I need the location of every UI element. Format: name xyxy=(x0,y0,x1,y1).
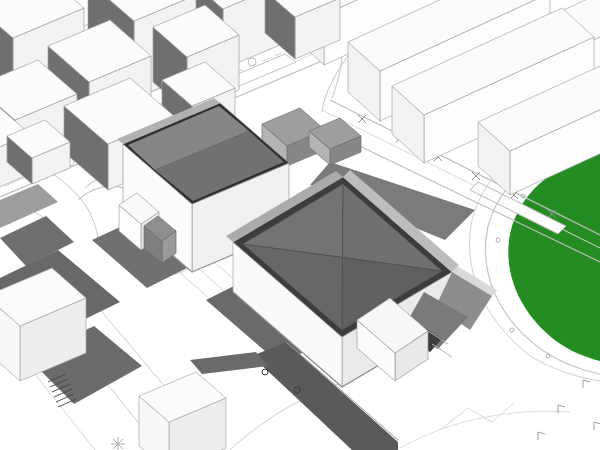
bottom-faint-path xyxy=(400,411,570,448)
park-dot-5 xyxy=(510,328,514,332)
crossing-curve xyxy=(68,186,98,238)
bench-glyphs xyxy=(538,380,600,440)
scene-svg xyxy=(0,0,600,450)
park-dot-6 xyxy=(546,354,550,358)
manhole-1 xyxy=(248,58,256,66)
model-viewport xyxy=(0,0,600,450)
walkway-dot-1 xyxy=(262,369,268,375)
tree-glyph-2 xyxy=(111,437,125,450)
park-dot-3 xyxy=(496,238,500,242)
dark-walkway-spur xyxy=(190,352,268,374)
